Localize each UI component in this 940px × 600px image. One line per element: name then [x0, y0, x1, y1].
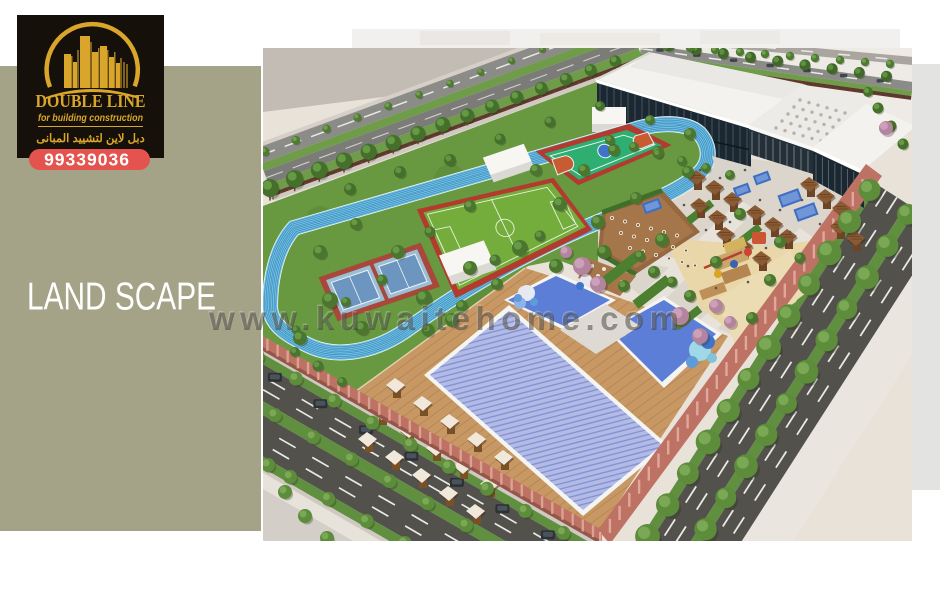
svg-text:دبل لاين لتشييد المبانى: دبل لاين لتشييد المبانى — [36, 132, 144, 146]
svg-text:for building construction: for building construction — [38, 112, 143, 124]
svg-text:DOUBLE LINE: DOUBLE LINE — [36, 91, 146, 111]
svg-text:99339036: 99339036 — [44, 150, 130, 170]
svg-text:LAND SCAPE: LAND SCAPE — [27, 276, 216, 319]
svg-text:www.kuwaitehome.com: www.kuwaitehome.com — [208, 300, 685, 337]
